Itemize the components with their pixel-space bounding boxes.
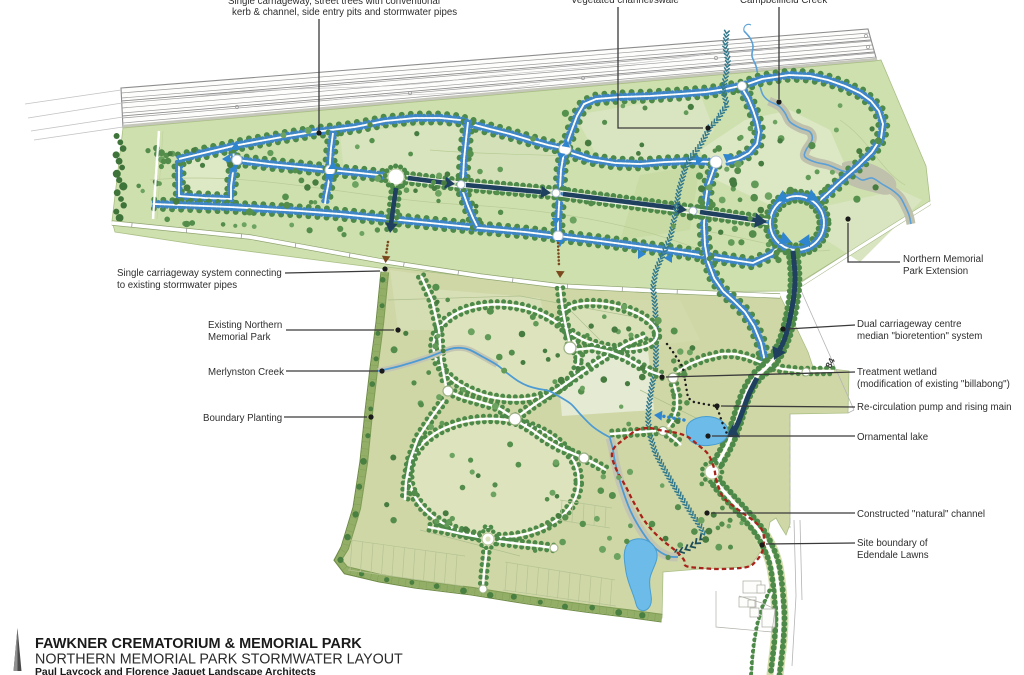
svg-text:Paul Laycock and Florence Jaqu: Paul Laycock and Florence Jaquet Landsca… <box>35 667 316 675</box>
svg-text:Dual carriageway centre: Dual carriageway centre <box>857 319 961 330</box>
svg-text:kerb & channel, side entry pit: kerb & channel, side entry pits and stor… <box>232 7 457 18</box>
svg-text:Constructed "natural" channel: Constructed "natural" channel <box>857 509 985 520</box>
svg-text:median "bioretention" system: median "bioretention" system <box>857 331 982 342</box>
svg-text:Boundary Planting: Boundary Planting <box>203 413 282 424</box>
svg-text:Existing Northern: Existing Northern <box>208 320 282 331</box>
svg-text:Edendale Lawns: Edendale Lawns <box>857 550 929 561</box>
svg-text:Site boundary of: Site boundary of <box>857 538 928 549</box>
svg-text:(modification of existing "bil: (modification of existing "billabong") <box>857 379 1010 390</box>
svg-text:Vegetated channel/swale: Vegetated channel/swale <box>571 0 679 6</box>
svg-text:Single carriageway, street tre: Single carriageway, street trees with co… <box>228 0 440 7</box>
svg-text:Treatment wetland: Treatment wetland <box>857 367 937 378</box>
svg-text:NORTHERN MEMORIAL PARK STORMWA: NORTHERN MEMORIAL PARK STORMWATER LAYOUT <box>35 652 403 668</box>
svg-text:FAWKNER CREMATORIUM & MEMORIAL: FAWKNER CREMATORIUM & MEMORIAL PARK <box>35 636 362 652</box>
svg-text:Park Extension: Park Extension <box>903 266 968 277</box>
svg-text:Northern Memorial: Northern Memorial <box>903 254 983 265</box>
svg-text:Re-circulation pump and rising: Re-circulation pump and rising main <box>857 402 1012 413</box>
svg-text:Ornamental lake: Ornamental lake <box>857 432 928 443</box>
svg-text:Campbellfield Creek: Campbellfield Creek <box>740 0 827 6</box>
svg-text:Merlynston Creek: Merlynston Creek <box>208 367 284 378</box>
svg-text:Memorial Park: Memorial Park <box>208 332 271 343</box>
svg-text:Single carriageway system conn: Single carriageway system connecting <box>117 268 282 279</box>
svg-text:to existing stormwater pipes: to existing stormwater pipes <box>117 280 237 291</box>
